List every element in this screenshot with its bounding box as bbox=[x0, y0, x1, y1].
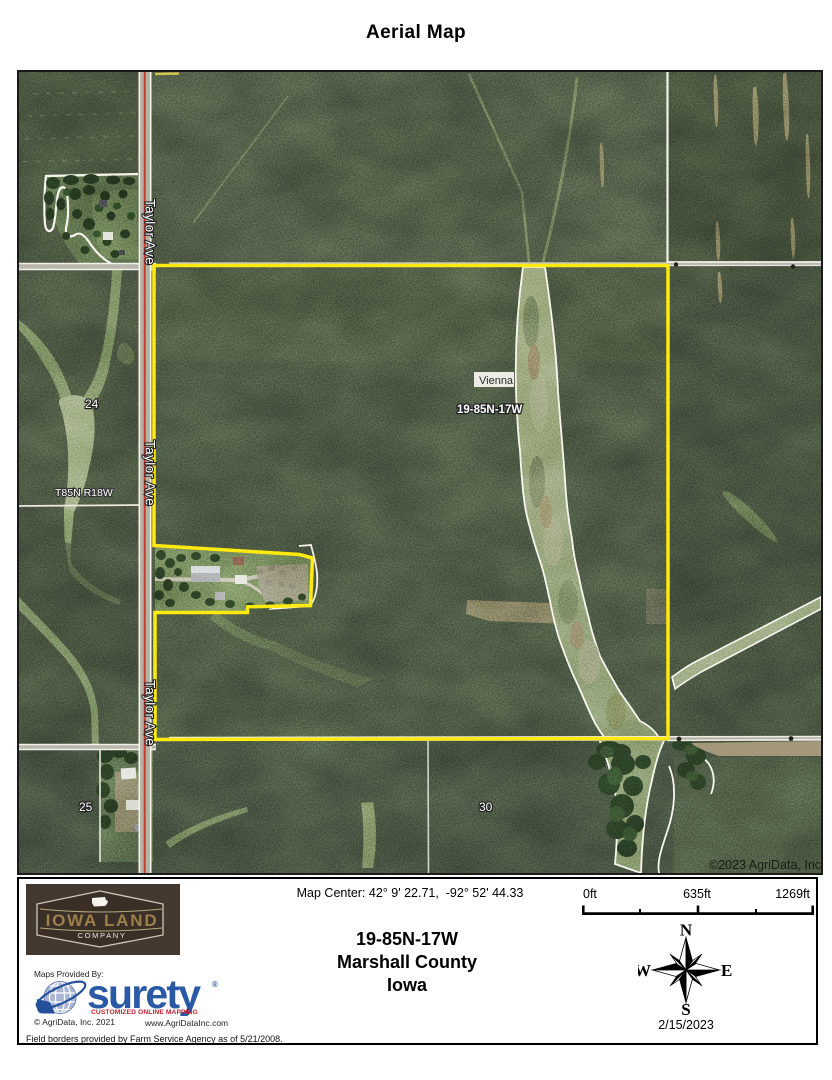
svg-text:Vienna: Vienna bbox=[479, 375, 514, 387]
svg-text:©2023 AgriData, Inc.: ©2023 AgriData, Inc. bbox=[709, 858, 821, 872]
svg-text:COMPANY: COMPANY bbox=[77, 931, 126, 940]
svg-text:CUSTOMIZED ONLINE MAPPING: CUSTOMIZED ONLINE MAPPING bbox=[91, 1009, 198, 1016]
svg-text:T85N R18W: T85N R18W bbox=[55, 487, 113, 499]
svg-text:N: N bbox=[680, 922, 693, 940]
svg-text:Taylor Ave: Taylor Ave bbox=[143, 440, 158, 506]
svg-text:E: E bbox=[721, 961, 732, 980]
svg-text:®: ® bbox=[212, 980, 218, 989]
svg-text:IOWA LAND: IOWA LAND bbox=[46, 911, 159, 930]
svg-text:25: 25 bbox=[79, 800, 93, 814]
svg-text:Taylor Ave: Taylor Ave bbox=[143, 199, 158, 265]
svg-text:24: 24 bbox=[85, 397, 99, 411]
svg-text:19-85N-17W: 19-85N-17W bbox=[457, 404, 522, 416]
svg-text:W: W bbox=[638, 961, 651, 980]
svg-text:Taylor Ave: Taylor Ave bbox=[143, 680, 158, 746]
svg-text:S: S bbox=[681, 1000, 690, 1018]
svg-text:30: 30 bbox=[479, 800, 493, 814]
